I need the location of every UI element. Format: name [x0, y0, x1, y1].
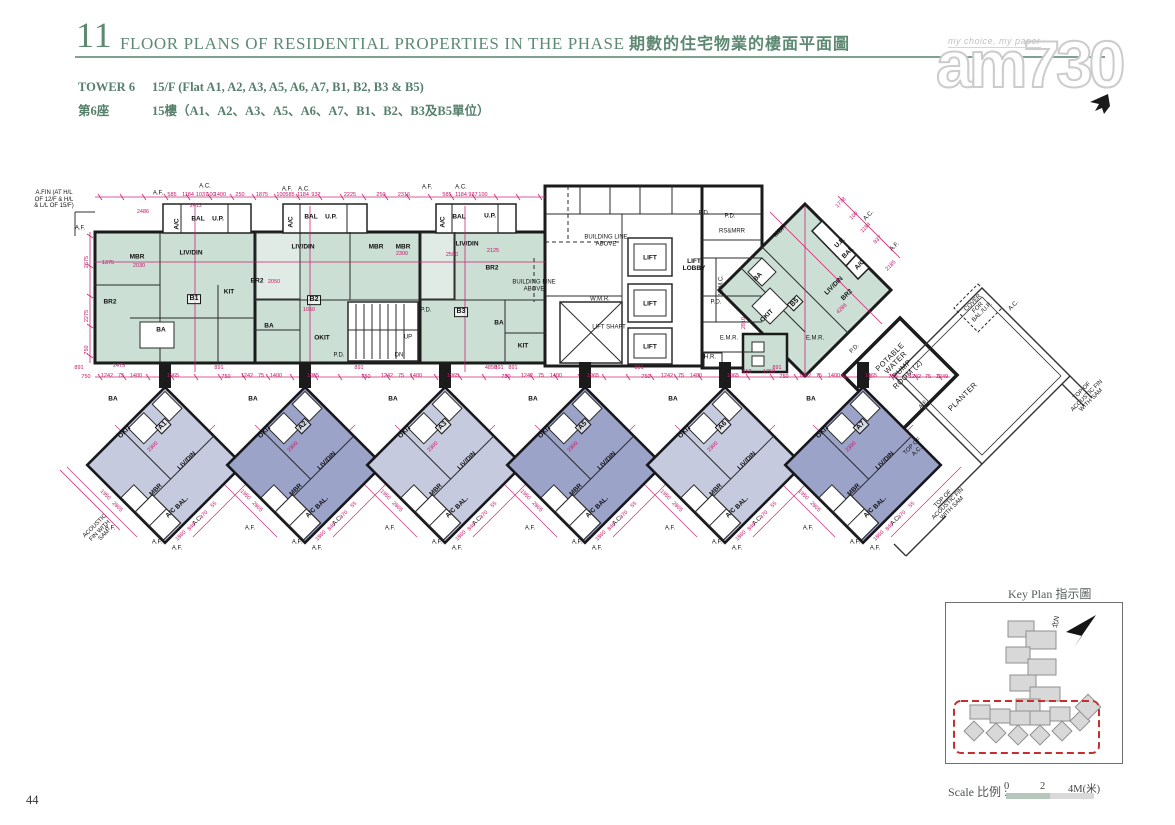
plan-label: A.F. — [75, 226, 85, 233]
key-plan-title: Key Plan 指示圖 — [1008, 585, 1091, 602]
unit-A2-label: BA — [248, 395, 257, 402]
unit-A7-label: A.F. — [850, 540, 860, 547]
dimension-label: 2050 — [268, 279, 280, 285]
unit-A5-label: BA — [528, 395, 537, 402]
plan-label: MBR — [130, 253, 145, 260]
dimension-label: 2412 — [190, 203, 202, 209]
plan-label: LIFT — [643, 343, 657, 350]
dimension-label: 2475 — [113, 363, 125, 369]
dimension-label: 1242 — [381, 373, 393, 379]
dimension-label: 2675 — [84, 256, 90, 268]
dimension-label: 250 — [376, 192, 385, 198]
unit-A1-label: A.F. — [172, 546, 182, 553]
page-number: 44 — [26, 793, 39, 808]
dimension-label: 1965 — [587, 373, 599, 379]
unit-A6-label: A.F. — [712, 540, 722, 547]
plan-label: B2 — [307, 295, 321, 305]
dimension-label: 1242 — [241, 373, 253, 379]
plan-label: W.M.R. — [590, 297, 610, 304]
dimension-label: 891 — [74, 365, 83, 371]
unit-A7-label: A.F. — [803, 526, 813, 533]
dimension-label: 750 — [84, 345, 90, 354]
dimension-label: 1242 — [799, 373, 811, 379]
unit-A1-label: A.F. — [105, 526, 115, 533]
dimension-label: 1242 — [909, 374, 921, 380]
plan-label: E.M.R. — [806, 336, 824, 343]
dimension-label: 750 — [81, 374, 90, 380]
plan-label: MBR — [396, 243, 411, 250]
dimension-label: 750 — [779, 374, 788, 380]
unit-A2-label: A.F. — [292, 540, 302, 547]
plan-label: BR2 — [485, 264, 498, 271]
dimension-label: 100 — [478, 192, 487, 198]
unit-A5-label: A.F. — [525, 526, 535, 533]
unit-A6-label: BA — [668, 395, 677, 402]
dimension-label: 1400 — [550, 373, 562, 379]
brochure-page: 11 FLOOR PLANS OF RESIDENTIAL PROPERTIES… — [0, 0, 1175, 825]
dimension-label: 75 — [538, 373, 544, 379]
plan-label: LIFT SHAFT — [592, 325, 626, 332]
dimension-label: 1184 — [297, 192, 309, 198]
plan-label: U.P. — [325, 213, 337, 220]
dimension-label: 891 — [634, 365, 643, 371]
dimension-label: 585 — [167, 192, 176, 198]
plan-label: U.P. — [212, 215, 224, 222]
plan-label: A.C. — [199, 184, 211, 191]
plan-label: LIFT — [643, 254, 657, 261]
dimension-label: 1400 — [690, 373, 702, 379]
dimension-label: 1242 — [661, 373, 673, 379]
dimension-label: 2810 — [741, 317, 747, 329]
dimension-label: 75 — [816, 373, 822, 379]
plan-label: LIV/DIN — [291, 243, 314, 250]
dimension-label: 1875 — [256, 192, 268, 198]
plan-label: KIT — [224, 288, 234, 295]
dimension-label: 1400 — [828, 373, 840, 379]
dimension-label: 1249 — [936, 374, 948, 380]
north-arrow-icon — [1066, 615, 1096, 647]
dimension-label: 1050 — [303, 307, 315, 313]
plan-label: A.FIN (AT H/L OF 12/F & H/L & L/L OF 15/… — [34, 190, 73, 210]
plan-label: P.D. — [699, 211, 710, 218]
unit-A2-label: A.F. — [312, 546, 322, 553]
unit-A7-label: BA — [806, 395, 815, 402]
dimension-label: 937 — [468, 192, 477, 198]
dimension-label: 1184 — [455, 192, 467, 198]
dimension-label: 891 — [508, 365, 517, 371]
plan-label: P.D. — [334, 353, 345, 360]
plan-label: A/C — [287, 216, 294, 227]
plan-label: U.P. — [484, 212, 496, 219]
dimension-label: 750 — [221, 374, 230, 380]
scale-label: Scale 比例 : — [948, 783, 1007, 800]
dimension-label: 750 — [888, 374, 897, 380]
dimension-label: 2316 — [398, 192, 410, 198]
dimension-label: 1242 — [521, 373, 533, 379]
plan-label: A/C — [173, 218, 180, 229]
unit-A3-label: A.F. — [432, 540, 442, 547]
dimension-label: 2486 — [137, 209, 149, 215]
plan-label: OKIT — [314, 334, 330, 341]
north-label: 北N — [1050, 615, 1062, 629]
dimension-label: 2030 — [133, 263, 145, 269]
dimension-label: 1400 — [410, 373, 422, 379]
dimension-label: 100 — [276, 192, 285, 198]
plan-label: BAL — [304, 213, 317, 220]
plan-label: BUILDING LINE ABOVE — [584, 234, 627, 247]
unit-A3-label: BA — [388, 395, 397, 402]
plan-label: UP — [404, 335, 412, 342]
plan-label: A/C — [439, 216, 446, 227]
dimension-label: 2300 — [396, 251, 408, 257]
unit-A3 — [367, 387, 523, 543]
dimension-label: 2225 — [344, 192, 356, 198]
plan-label: DN — [395, 353, 404, 360]
plan-label: A.F. — [153, 191, 163, 198]
unit-A5-label: A.F. — [592, 546, 602, 553]
key-plan-box — [945, 602, 1123, 764]
plan-label: BAL — [452, 213, 465, 220]
plan-label: LIV/DIN — [179, 249, 202, 256]
dimension-label: 1375 — [102, 260, 114, 266]
dimension-label: 1400 — [130, 373, 142, 379]
dimension-label: 891 — [214, 365, 223, 371]
dimension-label: 250 — [235, 192, 244, 198]
scale-bar-left — [1006, 793, 1050, 799]
plan-label: MBR — [369, 243, 384, 250]
plan-label: KIT — [518, 342, 528, 349]
dimension-label: 1400 — [270, 373, 282, 379]
dimension-label: 75 — [258, 373, 264, 379]
plan-label: RS&MRR — [719, 229, 745, 236]
dimension-label: 650 — [742, 369, 751, 375]
plan-label: P.D. — [725, 214, 736, 221]
dimension-label: 585 — [442, 192, 451, 198]
plan-label: BR2 — [103, 298, 116, 305]
plan-label: B3 — [454, 307, 468, 317]
dimension-label: 937 — [311, 192, 320, 198]
dimension-label: 750 — [501, 374, 510, 380]
dimension-label: 1965 — [167, 373, 179, 379]
plan-label: LIFT — [643, 300, 657, 307]
plan-label: P.D. — [711, 300, 722, 307]
plan-label: LIFT LOBBY — [683, 258, 706, 272]
unit-A6-label: A.F. — [732, 546, 742, 553]
unit-A6 — [647, 387, 803, 543]
plan-label: LIV/DIN — [455, 240, 478, 247]
scale-bar-right — [1050, 793, 1094, 799]
unit-A5 — [507, 387, 663, 543]
unit-A3-label: A.F. — [452, 546, 462, 553]
dimension-label: 1400 — [214, 192, 226, 198]
plan-label: BAL — [191, 215, 204, 222]
plan-label: A.F. — [422, 185, 432, 192]
unit-A2 — [227, 387, 383, 543]
dimension-label: 1965 — [865, 373, 877, 379]
dimension-label: 2500 — [446, 252, 458, 258]
plan-label: BA — [156, 326, 165, 333]
am730-watermark: am730 my choice, my paper — [930, 18, 1140, 118]
cursor-arrow-icon — [930, 18, 1140, 118]
dimension-label: 750 — [641, 374, 650, 380]
key-plan-map — [946, 603, 1120, 761]
dimension-label: 891 — [494, 365, 503, 371]
plan-label: BUILDING LINE ABOVE — [512, 279, 555, 292]
plan-label: P.D. — [421, 308, 432, 315]
plan-label: H.R. — [704, 355, 716, 362]
plan-label: W.M.C. — [719, 275, 726, 295]
scale-tick-2: 2 — [1040, 781, 1045, 792]
unit-A2-label: A.F. — [245, 526, 255, 533]
plan-label: A.C. — [455, 185, 467, 192]
plan-label: B1 — [187, 294, 201, 304]
dimension-label: 2125 — [487, 248, 499, 254]
dimension-label: 585 — [285, 192, 294, 198]
dimension-label: 75 — [678, 373, 684, 379]
dimension-label: 75 — [118, 373, 124, 379]
unit-A7-label: A.F. — [870, 546, 880, 553]
plan-label: BA — [494, 319, 503, 326]
dimension-label: 75 — [398, 373, 404, 379]
unit-A5-label: A.F. — [572, 540, 582, 547]
dimension-label: 891 — [354, 365, 363, 371]
dimension-label: 1965 — [307, 373, 319, 379]
dimension-label: 75 — [925, 374, 931, 380]
dimension-label: 2275 — [84, 310, 90, 322]
dimension-label: 1965 — [447, 373, 459, 379]
dimension-label: 1965 — [727, 373, 739, 379]
scale-tick-0: 0 — [1004, 781, 1009, 792]
unit-A3-label: A.F. — [385, 526, 395, 533]
unit-A1-label: BA — [108, 395, 117, 402]
plan-label: BA — [264, 322, 273, 329]
dimension-label: 750 — [361, 374, 370, 380]
unit-A1-label: A.F. — [152, 540, 162, 547]
dimension-label: 1242 — [101, 373, 113, 379]
dimension-label: 1184 — [182, 192, 194, 198]
plan-label: E.M.R. — [720, 336, 738, 343]
plan-label: BR2 — [250, 277, 263, 284]
unit-A6-label: A.F. — [665, 526, 675, 533]
dimension-label: 891 — [772, 365, 781, 371]
